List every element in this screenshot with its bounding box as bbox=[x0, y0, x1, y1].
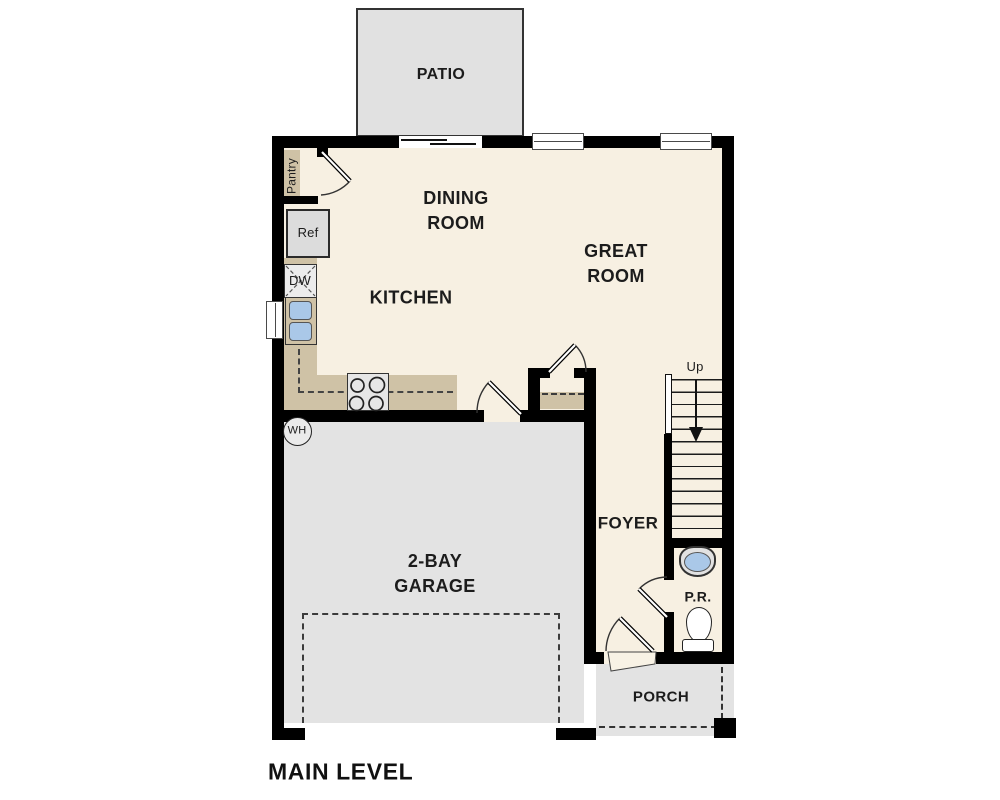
label-pantry: Pantry bbox=[284, 158, 301, 194]
label-patio: PATIO bbox=[417, 64, 466, 86]
closet-door-swing bbox=[549, 345, 586, 372]
label-water-heater: WH bbox=[288, 423, 307, 438]
label-porch: PORCH bbox=[633, 688, 689, 709]
plan-vector-overlay bbox=[0, 0, 1000, 800]
floor-plan: PATIO DINING ROOM GREAT ROOM KITCHEN 2-B… bbox=[0, 0, 1000, 800]
stove-burners-icon bbox=[350, 378, 385, 411]
label-dining-room: DINING ROOM bbox=[423, 186, 488, 236]
label-great-room: GREAT ROOM bbox=[584, 239, 648, 289]
label-stairs-up: Up bbox=[686, 358, 703, 376]
label-dishwasher: DW bbox=[289, 272, 311, 290]
plan-title: MAIN LEVEL bbox=[268, 759, 413, 786]
powder-door-swing bbox=[639, 577, 667, 617]
label-garage: 2-BAY GARAGE bbox=[394, 549, 475, 599]
label-kitchen: KITCHEN bbox=[370, 286, 453, 311]
label-powder-room: P.R. bbox=[684, 587, 711, 606]
garage-entry-door-swing bbox=[477, 382, 521, 414]
front-door-swing bbox=[606, 618, 656, 671]
sliding-door-icon bbox=[401, 140, 476, 144]
pantry-door-swing bbox=[321, 152, 350, 195]
label-foyer: FOYER bbox=[598, 511, 659, 534]
stairs-up-arrow bbox=[689, 380, 703, 442]
label-ref: Ref bbox=[298, 224, 319, 242]
